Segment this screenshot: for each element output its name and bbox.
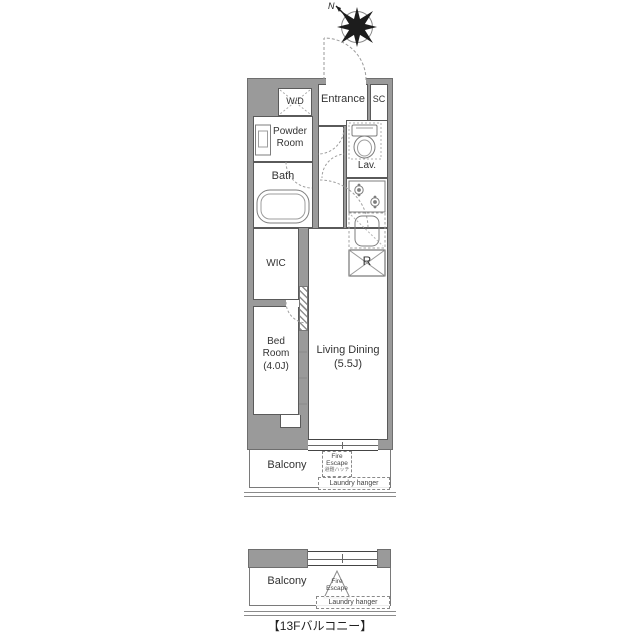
balcony-outer-rail-2 [244,496,396,497]
balcony-label: Balcony [256,459,318,472]
living-dining-label: Living Dining [308,344,388,357]
window-center-tick [342,554,343,563]
window-mid-line [308,445,378,446]
room-kitchen [346,178,388,228]
sliding-door-pocket [299,286,308,331]
bedroom-wall-notch [280,415,301,428]
lavatory-label: Lav. [348,160,386,172]
powder-room-label: Powder Room [268,126,312,149]
entrance-door-opening [326,77,366,85]
fire-escape-note: 避難ハッチ [323,468,351,473]
fire-escape-label: Fire Escape [323,454,351,468]
balcony13f-wall-right [377,549,391,568]
compass-icon: N [328,1,377,47]
laundry-hanger-zone: Laundry hanger [318,477,390,490]
sliding-door-track [302,331,305,415]
bedroom-size-label: (4.0J) [253,361,299,373]
balcony13f-outer-rail-2 [244,615,396,616]
bedroom-label: Bed Room [255,336,297,359]
bath-label: Bath [255,170,311,183]
fire-escape-hatch: Fire Escape 避難ハッチ [322,451,352,477]
window-center-tick [342,442,343,449]
balcony13f-window [308,551,377,566]
room-hall [318,126,344,228]
living-dining-size-label: (5.5J) [308,358,388,371]
balcony-window [308,439,378,451]
balcony-outer-rail-1 [244,492,396,493]
balcony13f-laundry-zone: Laundry hanger [316,596,390,609]
entrance-label: Entrance [318,93,368,106]
washer-dryer-label: W/D [278,96,312,106]
compass-north-label: N [328,1,335,11]
balcony13f-outer-rail-1 [244,611,396,612]
entrance-door-swing [324,38,366,80]
wic-label: WIC [253,258,299,270]
balcony13f-fire-escape-label: Fire Escape [322,579,352,593]
balcony13f-caption: 【13Fバルコニー】 [245,620,395,634]
balcony13f-label: Balcony [256,575,318,588]
floor-plan-page: Balcony Fire Escape 避難ハッチ Laundry hanger… [0,0,640,639]
refrigerator-label: R [349,255,385,269]
shoe-closet-label: SC [370,94,388,104]
laundry-hanger-label: Laundry hanger [319,480,389,487]
balcony13f-wall-left [248,549,308,568]
laundry-hanger-label: Laundry hanger [317,599,389,606]
